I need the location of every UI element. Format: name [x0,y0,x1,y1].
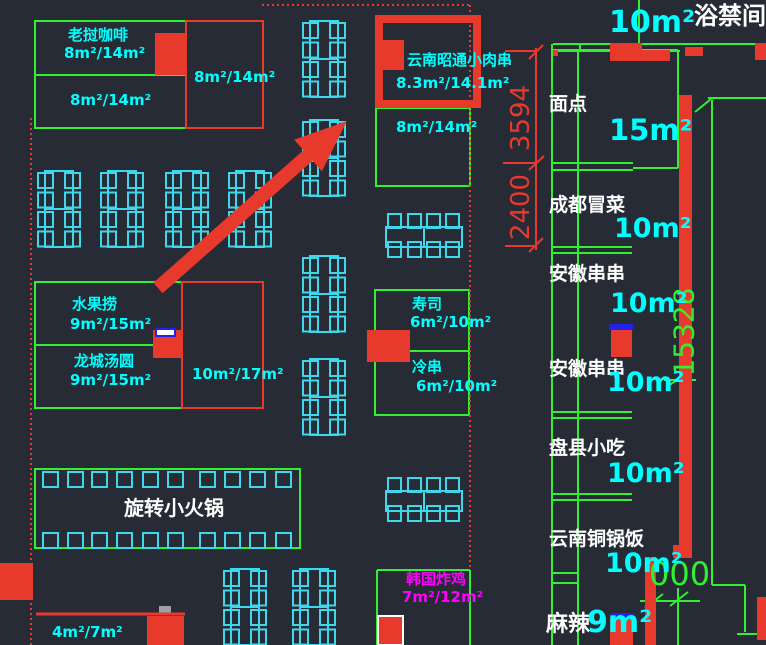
stall-area-mala: 9m² [587,608,652,638]
stall-area-korean-chicken: 7m²/12m² [402,590,483,605]
cad-canvas: 3594 2400 15328 000 老挝咖啡 8m²/14m² 8m²/14… [0,0,766,645]
stall-area-sushi: 6m²/10m² [410,315,491,330]
dimension-3594: 3594 [506,85,536,151]
stall-area-tangyuan: 9m²/15m² [70,373,151,388]
stall-area-miandian: 15m² [609,116,692,145]
stall-label-panxian-snacks: 盘县小吃 [549,439,625,458]
stall-label-rotating-hotpot: 旋转小火锅 [124,498,224,518]
stall-area-anhui-chuanchuan-2: 10m² [607,369,685,396]
stall-area-bottom-left: 4m²/7m² [52,625,123,640]
stall-area-chengdu-maocai: 10m² [614,215,692,242]
stall-label-anhui-chuanchuan-1: 安徽串串 [549,265,625,284]
room-label-top-right: 浴禁间 [694,4,766,28]
stall-area-laos-coffee-side: 8m²/14m² [194,70,275,85]
stall-area-laos-coffee-top: 8m²/14m² [64,46,145,61]
stall-label-tangyuan: 龙城汤圆 [74,354,134,369]
stall-label-mala: 麻辣 [546,614,590,636]
stall-area-panxian-snacks: 10m² [607,460,685,487]
stall-label-cold-skewer: 冷串 [412,360,442,375]
stall-label-laos-coffee: 老挝咖啡 [68,28,128,43]
stall-area-fruit: 9m²/15m² [70,317,151,332]
stall-area-mid-corner: 10m²/17m² [192,367,284,382]
stall-label-yunnan-zhaotong: 云南昭通小肉串 [407,53,512,68]
dimension-2400: 2400 [506,174,536,240]
stall-area-laos-coffee-bottom: 8m²/14m² [70,93,151,108]
stall-area-below-highlight: 8m²/14m² [396,120,477,135]
stall-label-miandian: 面点 [549,95,587,114]
stall-label-korean-chicken: 韩国炸鸡 [406,572,466,587]
stall-label-yunnan-copper-pot: 云南铜锅饭 [549,530,644,549]
stall-area-anhui-chuanchuan-1: 10m² [610,290,688,317]
area-top-right: 10m² [609,8,695,38]
stall-label-fruit: 水果捞 [72,297,117,312]
stall-area-cold-skewer: 6m²/10m² [416,379,497,394]
stall-label-sushi: 寿司 [412,297,442,312]
stall-area-yunnan-zhaotong: 8.3m²/14.1m² [396,76,509,91]
stall-area-yunnan-copper-pot: 10m² [605,550,683,577]
